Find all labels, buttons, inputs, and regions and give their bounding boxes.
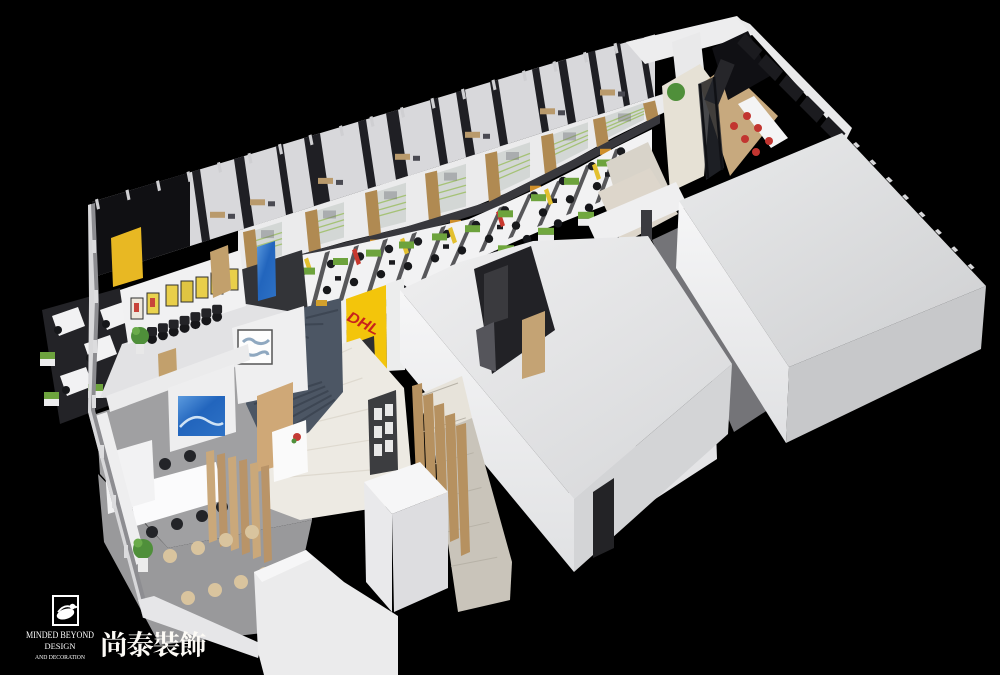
svg-text:MINDED BEYOND: MINDED BEYOND: [26, 631, 94, 641]
svg-text:DESIGN: DESIGN: [45, 642, 76, 651]
svg-text:AND DECORATION: AND DECORATION: [35, 654, 85, 661]
